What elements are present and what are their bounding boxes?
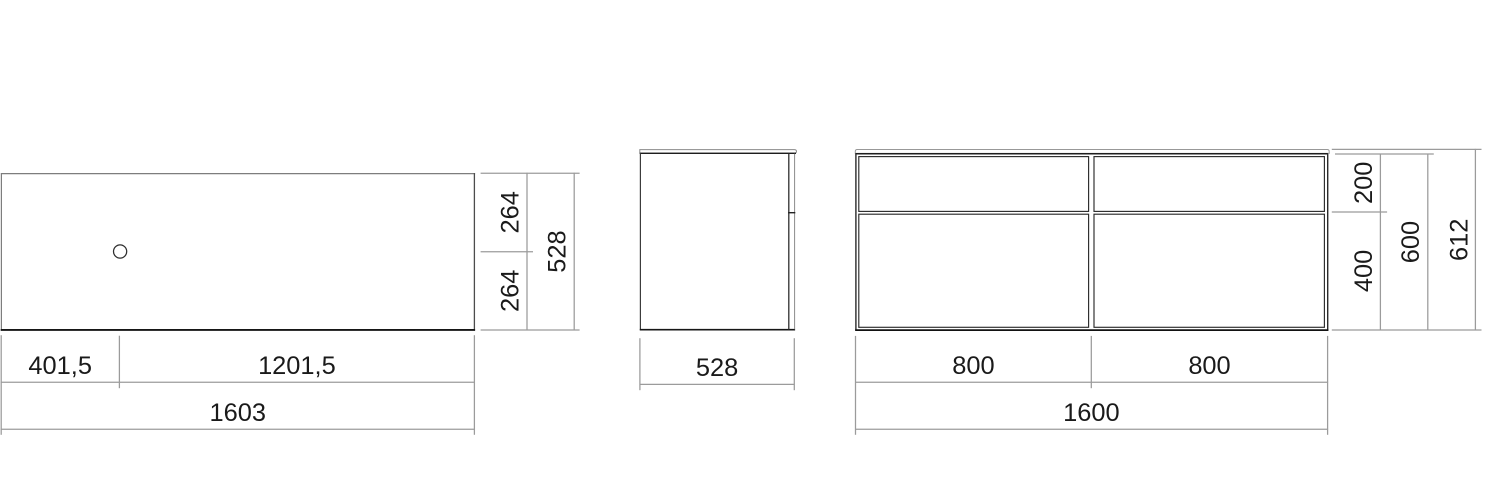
svg-text:800: 800 [952, 352, 994, 380]
svg-text:200: 200 [1350, 162, 1378, 204]
svg-text:528: 528 [696, 354, 738, 382]
svg-text:1600: 1600 [1063, 399, 1119, 427]
svg-text:528: 528 [544, 230, 572, 272]
svg-text:1603: 1603 [210, 399, 266, 427]
svg-text:400: 400 [1350, 250, 1378, 292]
svg-text:264: 264 [497, 270, 525, 312]
svg-text:600: 600 [1397, 221, 1425, 263]
svg-text:1201,5: 1201,5 [258, 352, 336, 380]
svg-text:401,5: 401,5 [28, 352, 92, 380]
svg-text:612: 612 [1445, 219, 1473, 261]
svg-text:264: 264 [497, 191, 525, 233]
svg-text:800: 800 [1188, 352, 1230, 380]
